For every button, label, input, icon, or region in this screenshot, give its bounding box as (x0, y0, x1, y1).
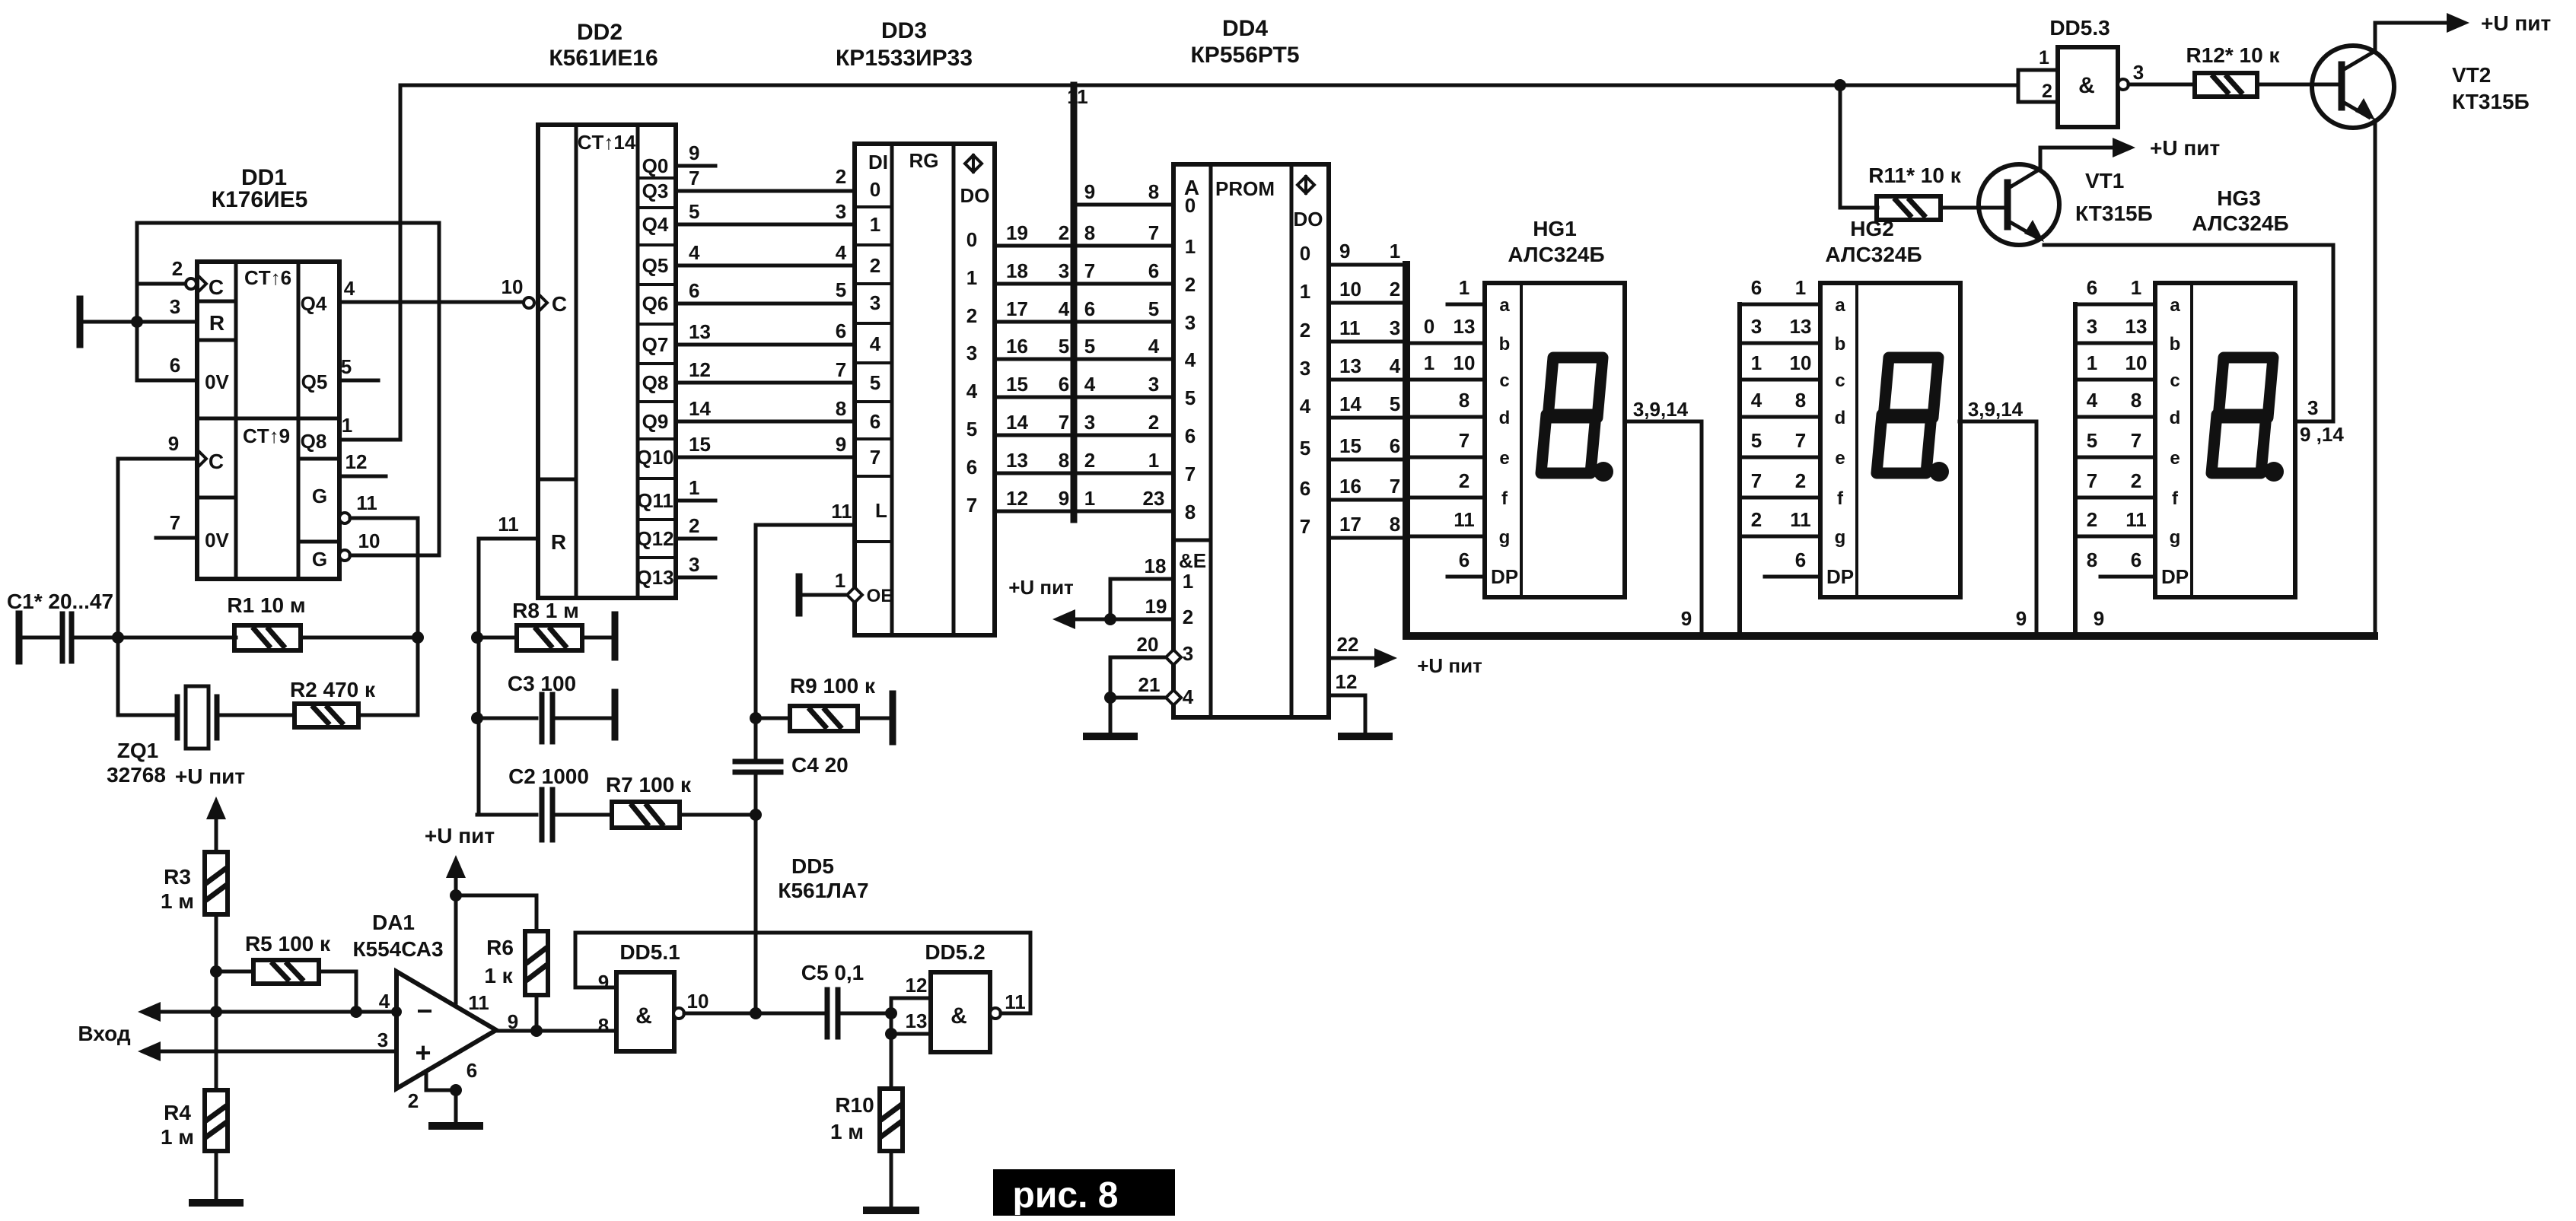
svg-text:e: e (1835, 448, 1845, 469)
svg-text:R5 100 к: R5 100 к (245, 932, 331, 955)
svg-text:2: 2 (1300, 319, 1310, 342)
svg-text:b: b (1499, 334, 1511, 355)
svg-text:3: 3 (2087, 315, 2097, 338)
svg-text:b: b (1835, 334, 1846, 355)
svg-text:АЛС324Б: АЛС324Б (1508, 243, 1604, 266)
svg-text:21: 21 (1138, 673, 1161, 696)
svg-text:1: 1 (966, 266, 977, 289)
svg-text:18: 18 (1145, 555, 1167, 577)
svg-text:2: 2 (2087, 508, 2097, 531)
svg-text:R7 100 к: R7 100 к (606, 773, 692, 797)
svg-text:5: 5 (1185, 386, 1196, 409)
svg-text:4: 4 (1084, 373, 1096, 396)
svg-text:R10: R10 (835, 1093, 874, 1117)
svg-text:PROM: PROM (1215, 177, 1275, 200)
svg-text:R: R (209, 311, 224, 335)
svg-text:0V: 0V (205, 370, 229, 393)
svg-text:R4: R4 (164, 1101, 191, 1124)
svg-text:1: 1 (1183, 570, 1193, 593)
svg-text:DI: DI (868, 151, 888, 173)
svg-text:11: 11 (1454, 508, 1475, 531)
svg-text:R2 470 к: R2 470 к (290, 678, 376, 701)
svg-text:11: 11 (1339, 316, 1361, 339)
svg-text:10: 10 (358, 529, 381, 552)
svg-text:+U пит: +U пит (2150, 136, 2220, 160)
svg-text:6: 6 (1795, 548, 1806, 571)
svg-text:G: G (312, 485, 327, 507)
svg-text:18: 18 (1006, 259, 1028, 282)
svg-text:a: a (2170, 295, 2180, 316)
svg-text:13: 13 (689, 320, 711, 343)
svg-text:10: 10 (1454, 351, 1476, 374)
svg-text:Q12: Q12 (636, 527, 673, 550)
svg-text:R: R (551, 530, 566, 554)
svg-text:1: 1 (2087, 351, 2097, 374)
svg-text:2: 2 (689, 514, 699, 537)
svg-text:3: 3 (870, 291, 880, 314)
svg-text:11: 11 (468, 991, 489, 1014)
svg-text:9: 9 (168, 432, 179, 455)
svg-text:+: + (415, 1037, 431, 1068)
svg-text:Q4: Q4 (642, 213, 669, 236)
svg-text:Q5: Q5 (301, 370, 328, 393)
svg-text:5: 5 (1084, 335, 1095, 358)
svg-text:11: 11 (356, 491, 377, 514)
svg-text:0: 0 (870, 178, 880, 201)
svg-text:1 м: 1 м (161, 889, 194, 913)
svg-text:4: 4 (836, 241, 847, 264)
svg-text:0V: 0V (205, 529, 229, 552)
svg-text:DP: DP (2161, 565, 2189, 588)
svg-text:R9 100 к: R9 100 к (790, 674, 876, 698)
svg-text:КТ315Б: КТ315Б (2452, 90, 2530, 113)
svg-text:7: 7 (1148, 221, 1159, 244)
svg-text:10: 10 (687, 990, 709, 1013)
svg-text:OE: OE (867, 586, 893, 606)
svg-text:L: L (875, 499, 887, 522)
svg-text:Вход: Вход (78, 1022, 130, 1045)
svg-text:6: 6 (1390, 434, 1400, 457)
svg-text:&: & (2078, 73, 2095, 98)
svg-text:6: 6 (966, 456, 977, 479)
svg-text:e: e (1499, 448, 1509, 469)
svg-text:12: 12 (906, 974, 928, 997)
svg-text:Q6: Q6 (642, 292, 669, 315)
svg-text:1: 1 (1185, 235, 1196, 258)
svg-text:16: 16 (1339, 475, 1361, 498)
svg-text:1: 1 (1390, 240, 1400, 262)
svg-text:2: 2 (1059, 221, 1069, 244)
svg-text:+U пит: +U пит (2481, 11, 2551, 35)
svg-text:4: 4 (1183, 685, 1194, 708)
svg-text:RG: RG (909, 149, 939, 172)
svg-text:0: 0 (1424, 315, 1434, 338)
svg-text:14: 14 (1339, 393, 1361, 415)
svg-text:0: 0 (1185, 194, 1196, 217)
svg-text:1: 1 (2039, 47, 2049, 68)
svg-text:7: 7 (689, 167, 699, 189)
svg-text:11: 11 (1067, 85, 1088, 108)
svg-text:Q8: Q8 (642, 371, 669, 394)
svg-text:16: 16 (1006, 335, 1028, 358)
svg-text:8: 8 (1148, 180, 1159, 203)
svg-text:g: g (1499, 527, 1511, 548)
svg-text:Q13: Q13 (636, 566, 673, 589)
svg-text:9: 9 (2094, 607, 2104, 630)
svg-text:9 ,14: 9 ,14 (2300, 423, 2344, 446)
svg-text:2: 2 (1084, 449, 1095, 472)
svg-text:3: 3 (1148, 373, 1159, 396)
svg-text:Q0: Q0 (642, 154, 669, 177)
svg-text:f: f (2172, 488, 2179, 509)
svg-text:15: 15 (1006, 373, 1028, 396)
svg-text:1: 1 (1424, 351, 1434, 374)
svg-text:10: 10 (1790, 351, 1812, 374)
svg-text:2: 2 (966, 304, 977, 327)
svg-text:9: 9 (836, 433, 846, 456)
svg-text:C2 1000: C2 1000 (508, 765, 589, 788)
svg-text:2: 2 (1751, 508, 1762, 531)
svg-text:14: 14 (1006, 411, 1028, 434)
svg-text:7: 7 (966, 494, 977, 517)
svg-text:5: 5 (341, 355, 352, 378)
svg-text:2: 2 (172, 257, 183, 280)
svg-text:13: 13 (1454, 315, 1476, 338)
svg-text:1: 1 (1795, 276, 1806, 299)
svg-text:9: 9 (1681, 607, 1692, 630)
svg-text:R8 1 м: R8 1 м (512, 599, 579, 622)
svg-text:3: 3 (966, 342, 977, 364)
svg-text:1: 1 (1300, 280, 1310, 303)
svg-text:7: 7 (2087, 469, 2097, 492)
svg-text:C: C (209, 450, 224, 473)
svg-text:1: 1 (1148, 449, 1159, 472)
svg-text:17: 17 (1339, 513, 1361, 536)
svg-text:11: 11 (1790, 508, 1811, 531)
svg-text:7: 7 (1751, 469, 1762, 492)
svg-text:1 к: 1 к (484, 964, 513, 987)
svg-text:3: 3 (1185, 311, 1196, 334)
svg-text:2: 2 (836, 165, 846, 188)
svg-text:6: 6 (689, 279, 699, 302)
svg-text:CT↑14: CT↑14 (578, 131, 636, 154)
svg-text:DD5: DD5 (791, 854, 834, 878)
svg-text:7: 7 (870, 446, 880, 469)
svg-text:6: 6 (2131, 548, 2141, 571)
svg-text:5: 5 (966, 418, 977, 440)
svg-text:R1 10 м: R1 10 м (227, 593, 305, 617)
svg-text:К561ЛА7: К561ЛА7 (778, 879, 868, 902)
svg-text:8: 8 (2131, 389, 2141, 412)
svg-text:e: e (2170, 448, 2180, 469)
svg-text:5: 5 (1300, 437, 1310, 459)
svg-text:6: 6 (466, 1059, 477, 1082)
svg-text:3: 3 (1059, 259, 1069, 282)
svg-text:17: 17 (1006, 297, 1028, 320)
svg-text:3: 3 (1300, 357, 1310, 380)
svg-text:рис. 8: рис. 8 (1013, 1175, 1119, 1216)
svg-text:13: 13 (1790, 315, 1812, 338)
svg-text:4: 4 (344, 277, 355, 300)
svg-text:2: 2 (1390, 278, 1400, 300)
svg-text:3,9,14: 3,9,14 (1968, 398, 2024, 421)
svg-text:C3 100: C3 100 (508, 672, 576, 695)
svg-text:КТ315Б: КТ315Б (2075, 202, 2153, 225)
svg-text:8: 8 (1795, 389, 1806, 412)
svg-text:1: 1 (835, 569, 845, 592)
svg-text:5: 5 (1148, 297, 1159, 320)
svg-text:8: 8 (598, 1014, 609, 1037)
svg-text:8: 8 (836, 397, 846, 420)
svg-text:HG1: HG1 (1533, 217, 1577, 240)
svg-text:5: 5 (1751, 429, 1762, 452)
svg-text:c: c (1499, 370, 1509, 391)
svg-text:c: c (2170, 370, 2180, 391)
svg-text:1: 1 (1459, 276, 1469, 299)
svg-text:6: 6 (836, 320, 846, 342)
svg-text:4: 4 (379, 990, 390, 1013)
svg-text:a: a (1499, 295, 1510, 316)
svg-text:11: 11 (498, 513, 519, 536)
svg-text:12: 12 (689, 358, 711, 381)
svg-text:1: 1 (870, 213, 880, 236)
svg-text:9: 9 (689, 141, 699, 164)
svg-text:8: 8 (1084, 221, 1095, 244)
svg-text:f: f (1501, 488, 1508, 509)
svg-text:R11* 10 к: R11* 10 к (1868, 164, 1961, 187)
svg-text:DD2: DD2 (577, 20, 623, 45)
svg-text:3: 3 (1183, 642, 1193, 665)
svg-text:C: C (209, 275, 224, 299)
svg-text:5: 5 (836, 278, 846, 301)
svg-text:11: 11 (1005, 990, 1026, 1013)
svg-text:1: 1 (1751, 351, 1762, 374)
svg-text:13: 13 (1006, 449, 1028, 472)
svg-text:DD5.2: DD5.2 (925, 940, 985, 964)
svg-text:13: 13 (906, 1010, 928, 1032)
svg-text:6: 6 (170, 354, 180, 377)
svg-text:3: 3 (1390, 316, 1400, 339)
svg-text:6: 6 (1148, 259, 1159, 282)
svg-text:3: 3 (170, 295, 180, 318)
svg-text:3,9,14: 3,9,14 (1633, 398, 1689, 421)
svg-text:g: g (2170, 527, 2181, 548)
svg-text:10: 10 (2125, 351, 2148, 374)
svg-text:0: 0 (966, 228, 977, 251)
svg-text:2: 2 (870, 254, 880, 277)
svg-text:4: 4 (1751, 389, 1762, 412)
svg-text:5: 5 (2087, 429, 2097, 452)
svg-text:6: 6 (1459, 548, 1469, 571)
svg-text:6: 6 (2087, 276, 2097, 299)
svg-text:4: 4 (1300, 395, 1311, 418)
svg-text:DO: DO (1294, 208, 1323, 231)
svg-text:1: 1 (342, 414, 352, 437)
svg-text:1: 1 (1084, 487, 1095, 510)
svg-text:C1* 20...47: C1* 20...47 (7, 590, 113, 613)
svg-text:&E: &E (1179, 549, 1206, 572)
svg-text:8: 8 (1185, 501, 1196, 523)
svg-text:DD4: DD4 (1222, 16, 1268, 41)
svg-text:6: 6 (870, 410, 880, 433)
svg-text:8: 8 (1459, 389, 1469, 412)
svg-text:b: b (2170, 334, 2181, 355)
svg-text:6: 6 (1751, 276, 1762, 299)
svg-text:К176ИЕ5: К176ИЕ5 (212, 187, 308, 212)
svg-text:12: 12 (345, 450, 368, 473)
svg-text:8: 8 (2087, 548, 2097, 571)
svg-text:7: 7 (1300, 515, 1310, 538)
svg-text:14: 14 (689, 397, 711, 420)
svg-text:4: 4 (870, 332, 881, 355)
svg-text:+U пит: +U пит (1417, 654, 1482, 677)
svg-text:&: & (635, 1003, 652, 1029)
svg-text:3: 3 (836, 200, 846, 223)
svg-text:7: 7 (1185, 463, 1196, 485)
svg-text:3: 3 (2307, 396, 2318, 419)
svg-text:19: 19 (1006, 221, 1028, 244)
svg-text:7: 7 (2131, 429, 2141, 452)
svg-text:+U пит: +U пит (1008, 576, 1074, 599)
svg-text:3: 3 (1084, 411, 1095, 434)
svg-text:9: 9 (1084, 180, 1095, 203)
svg-text:Q3: Q3 (642, 180, 669, 202)
svg-text:15: 15 (689, 433, 711, 456)
svg-text:c: c (1835, 370, 1845, 391)
svg-text:Q4: Q4 (301, 292, 327, 315)
svg-text:32768: 32768 (107, 763, 166, 787)
svg-text:CT↑9: CT↑9 (243, 424, 290, 447)
svg-text:R12* 10 к: R12* 10 к (2186, 43, 2281, 67)
svg-text:7: 7 (1459, 429, 1469, 452)
svg-text:+U пит: +U пит (175, 765, 245, 788)
svg-text:C5 0,1: C5 0,1 (801, 961, 865, 984)
svg-text:R3: R3 (164, 865, 191, 889)
svg-text:2: 2 (2042, 81, 2052, 102)
svg-text:КР1533ИР33: КР1533ИР33 (836, 46, 973, 71)
svg-text:CT↑6: CT↑6 (244, 266, 291, 289)
svg-text:5: 5 (1390, 393, 1400, 415)
svg-text:2: 2 (1183, 606, 1193, 628)
svg-text:22: 22 (1337, 633, 1359, 656)
svg-text:2: 2 (1795, 469, 1806, 492)
svg-text:R6: R6 (486, 936, 514, 959)
svg-text:7: 7 (170, 511, 180, 534)
svg-text:3: 3 (2133, 61, 2144, 84)
svg-text:23: 23 (1143, 487, 1165, 510)
svg-text:DO: DO (960, 184, 990, 207)
svg-text:DP: DP (1491, 565, 1518, 588)
svg-text:8: 8 (1059, 449, 1069, 472)
svg-text:VT2: VT2 (2452, 63, 2491, 87)
svg-text:DD5.3: DD5.3 (2049, 16, 2110, 40)
svg-text:&: & (950, 1003, 967, 1029)
svg-text:15: 15 (1339, 434, 1361, 457)
svg-text:HG3: HG3 (2217, 186, 2261, 210)
svg-text:10: 10 (502, 275, 524, 298)
svg-text:VT1: VT1 (2085, 169, 2124, 192)
svg-text:g: g (1835, 527, 1846, 548)
svg-text:5: 5 (1059, 335, 1069, 358)
svg-text:7: 7 (1390, 475, 1400, 498)
svg-text:4: 4 (1148, 335, 1160, 358)
svg-text:2: 2 (1459, 469, 1469, 492)
svg-text:6: 6 (1185, 424, 1196, 447)
svg-text:2: 2 (1148, 411, 1159, 434)
svg-text:4: 4 (1185, 348, 1196, 371)
svg-text:−: − (416, 995, 432, 1026)
svg-text:Q11: Q11 (637, 489, 673, 512)
svg-text:7: 7 (1795, 429, 1806, 452)
svg-text:d: d (2170, 408, 2181, 428)
svg-text:d: d (1835, 408, 1846, 428)
svg-text:К561ИЕ16: К561ИЕ16 (549, 46, 658, 71)
svg-text:4: 4 (1390, 355, 1401, 377)
svg-text:f: f (1837, 488, 1844, 509)
svg-text:4: 4 (1059, 297, 1070, 320)
svg-text:13: 13 (1339, 355, 1361, 377)
svg-text:C: C (552, 292, 567, 316)
svg-text:ZQ1: ZQ1 (117, 739, 158, 762)
svg-text:2: 2 (408, 1089, 419, 1112)
svg-text:+U пит: +U пит (425, 824, 495, 847)
svg-text:КР556РТ5: КР556РТ5 (1191, 43, 1300, 68)
svg-text:11: 11 (831, 500, 852, 523)
svg-text:C4 20: C4 20 (791, 753, 849, 777)
svg-text:6: 6 (1300, 477, 1310, 500)
svg-text:12: 12 (1006, 487, 1028, 510)
svg-text:АЛС324Б: АЛС324Б (1825, 243, 1922, 266)
svg-text:8: 8 (1390, 513, 1400, 536)
svg-text:10: 10 (1339, 278, 1361, 300)
svg-text:1 м: 1 м (161, 1125, 194, 1149)
svg-text:1: 1 (689, 476, 699, 499)
svg-text:a: a (1835, 295, 1845, 316)
svg-text:3: 3 (1751, 315, 1762, 338)
svg-text:0: 0 (1300, 242, 1310, 265)
svg-text:G: G (312, 548, 327, 571)
svg-text:3: 3 (689, 553, 699, 576)
svg-text:АЛС324Б: АЛС324Б (2192, 211, 2288, 235)
svg-text:20: 20 (1137, 633, 1159, 656)
svg-text:9: 9 (598, 971, 609, 994)
svg-text:2: 2 (2131, 469, 2141, 492)
svg-text:12: 12 (1336, 670, 1358, 693)
svg-text:3: 3 (377, 1029, 388, 1051)
svg-text:Q5: Q5 (642, 254, 669, 277)
svg-text:9: 9 (2016, 607, 2027, 630)
svg-text:4: 4 (689, 241, 700, 264)
svg-text:DA1: DA1 (372, 911, 415, 934)
svg-text:DD3: DD3 (881, 18, 927, 43)
svg-text:Q7: Q7 (642, 333, 669, 356)
svg-text:6: 6 (1084, 297, 1095, 320)
svg-text:6: 6 (1059, 373, 1069, 396)
svg-text:5: 5 (870, 371, 880, 394)
svg-text:5: 5 (689, 200, 699, 223)
svg-text:11: 11 (2125, 508, 2147, 531)
svg-text:d: d (1499, 408, 1511, 428)
svg-text:1 м: 1 м (830, 1120, 864, 1143)
svg-text:13: 13 (2125, 315, 2148, 338)
svg-text:Q10: Q10 (636, 446, 673, 469)
svg-text:7: 7 (1084, 259, 1095, 282)
svg-text:4: 4 (966, 380, 978, 402)
svg-text:1: 1 (2131, 276, 2141, 299)
svg-text:9: 9 (1339, 240, 1350, 262)
svg-text:4: 4 (2087, 389, 2098, 412)
svg-text:7: 7 (1059, 411, 1069, 434)
